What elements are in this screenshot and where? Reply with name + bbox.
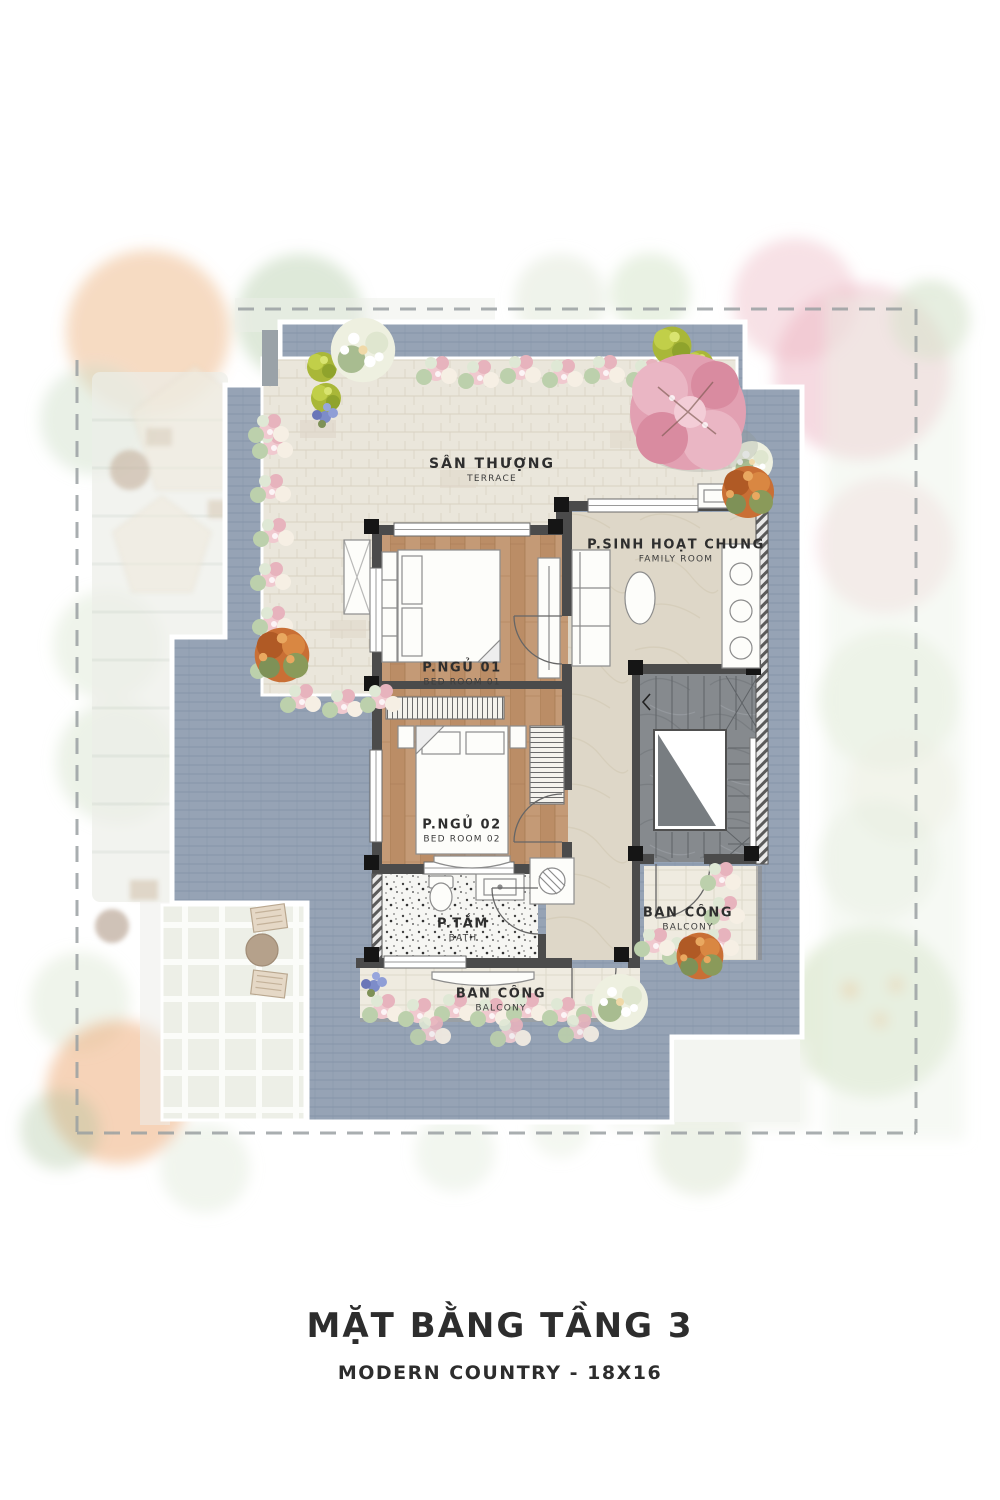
room-name-en: BALCONY	[643, 923, 733, 933]
room-name-en: BED ROOM 01	[422, 678, 502, 688]
room-name-en: BED ROOM 02	[422, 835, 502, 845]
room-name: P.SINH HOẠT CHUNG	[587, 538, 765, 553]
room-name: P.NGỦ 01	[422, 661, 502, 676]
room-label-family-room: P.SINH HOẠT CHUNG FAMILY ROOM	[587, 538, 765, 565]
deck-planter	[262, 330, 278, 386]
bed2-closet	[530, 726, 564, 804]
wall-hatched-bath	[372, 874, 382, 958]
bed1-shelf	[382, 552, 397, 662]
title-block: MẶT BẰNG TẦNG 3 MODERN COUNTRY - 18X16	[0, 1306, 1000, 1384]
coffee-table	[625, 572, 655, 624]
room-label-bath: P.TẮM BATH	[437, 917, 489, 944]
room-name: BAN CÔNG	[643, 906, 733, 921]
room-name-en: TERRACE	[429, 474, 555, 484]
patio-grid-paving	[162, 905, 305, 1120]
room-name-en: FAMILY ROOM	[587, 555, 765, 565]
room-label-bedroom-1: P.NGỦ 01 BED ROOM 01	[422, 661, 502, 688]
room-name: P.TẮM	[437, 917, 489, 932]
room-name-en: BALCONY	[456, 1004, 546, 1014]
plan-title: MẶT BẰNG TẦNG 3	[0, 1306, 1000, 1346]
room-name: P.NGỦ 02	[422, 818, 502, 833]
floor-plan-drawing	[0, 0, 1000, 1500]
room-label-balcony-rear: BAN CÔNG BALCONY	[456, 987, 546, 1014]
room-label-balcony-side: BAN CÔNG BALCONY	[643, 906, 733, 933]
deck-lower-roof	[674, 1040, 800, 1122]
room-name-en: BATH	[437, 934, 489, 944]
plan-subtitle: MODERN COUNTRY - 18X16	[0, 1362, 1000, 1384]
room-name: SÂN THƯỢNG	[429, 456, 555, 472]
toilet	[430, 883, 452, 911]
room-name: BAN CÔNG	[456, 987, 546, 1002]
floor-plan-page: SÂN THƯỢNG TERRACE P.SINH HOẠT CHUNG FAM…	[0, 0, 1000, 1500]
room-label-terrace: SÂN THƯỢNG TERRACE	[429, 456, 555, 484]
room-label-bedroom-2: P.NGỦ 02 BED ROOM 02	[422, 818, 502, 845]
sofa	[572, 550, 610, 666]
patio-table	[246, 934, 278, 966]
bed2-wardrobe	[386, 697, 504, 719]
